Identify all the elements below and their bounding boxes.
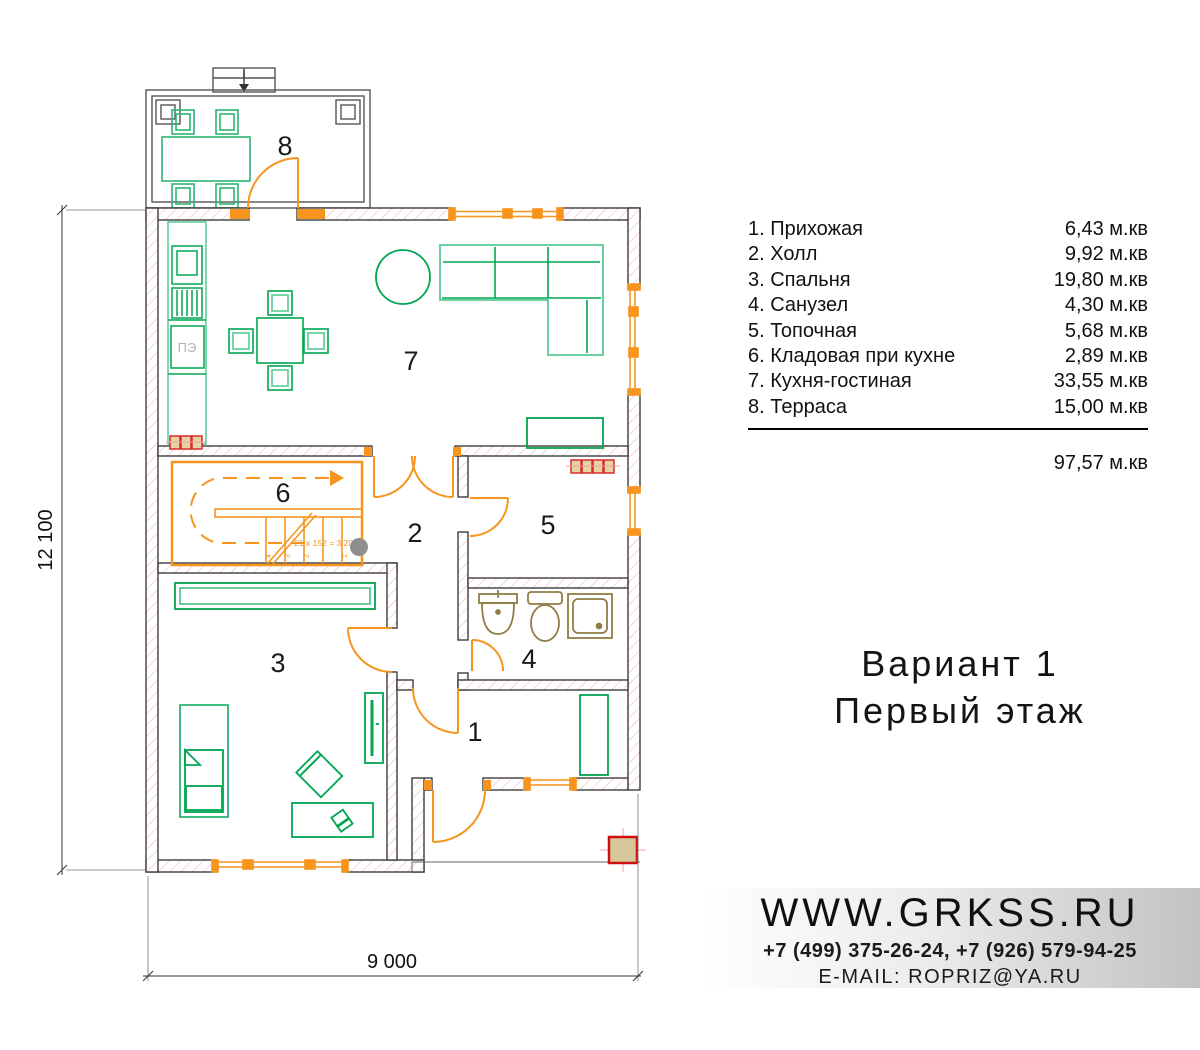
legend-row: 8. Терраса 15,00 м.кв: [748, 395, 1148, 420]
corner-sofa: [440, 245, 603, 355]
terrace-chair: [172, 110, 194, 134]
round-table: [376, 250, 430, 304]
bedroom-furniture: [175, 583, 383, 837]
dim-height-label: 12 100: [35, 509, 57, 570]
steps-arrow-icon: [239, 84, 249, 92]
stair-walk-line: [191, 478, 330, 543]
kitchen-stove-hatch: [172, 288, 202, 318]
legend-room-area: 9,92 м.кв: [1065, 242, 1148, 267]
terrace-steps: [213, 68, 275, 92]
legend-row: 3. Спальня 19,80 м.кв: [748, 268, 1148, 293]
svg-text:2: 2: [304, 554, 311, 558]
toilet-icon: [528, 592, 562, 641]
desk: [292, 803, 373, 837]
legend-room-name: 5. Топочная: [748, 319, 857, 344]
legend-room-name: 3. Спальня: [748, 268, 851, 293]
dining-set: [229, 291, 328, 390]
doors: [230, 158, 508, 842]
legend-row: 1. Прихожая 6,43 м.кв: [748, 217, 1148, 242]
svg-text:4: 4: [266, 554, 273, 558]
terrace: [146, 68, 370, 208]
walls: [146, 208, 640, 872]
dining-chair: [268, 366, 292, 390]
legend-room-area: 6,43 м.кв: [1065, 217, 1148, 242]
chimney-shaft: [600, 828, 646, 872]
legend-room-area: 5,68 м.кв: [1065, 319, 1148, 344]
entrance-porch: [412, 862, 640, 872]
room-labels: 8 7 6 2 5 4 3 1: [270, 131, 555, 747]
legend-room-area: 33,55 м.кв: [1054, 369, 1148, 394]
shower-icon: [568, 594, 612, 638]
wardrobe: [175, 583, 375, 609]
terrace-column: [336, 100, 360, 124]
legend-divider: [748, 428, 1148, 430]
legend-row: 4. Санузел 4,30 м.кв: [748, 293, 1148, 318]
dining-chair: [268, 291, 292, 315]
legend-row: 6. Кладовая при кухне 2,89 м.кв: [748, 344, 1148, 369]
bathroom-fixtures: [479, 590, 612, 641]
floor-plan-drawing: 21 x 152 = 3 200 4 3 2 1: [0, 0, 700, 1050]
door-boiler: [470, 498, 508, 536]
legend-room-area: 2,89 м.кв: [1065, 344, 1148, 369]
windows: [212, 208, 640, 872]
kitchen-counter: ПЭ: [168, 222, 206, 444]
door-bedroom: [348, 628, 392, 672]
door-terrace: [230, 158, 325, 219]
title-floor: Первый этаж: [740, 687, 1180, 734]
stair-newel-post: [350, 538, 368, 556]
legend-row: 2. Холл 9,92 м.кв: [748, 242, 1148, 267]
terrace-table: [162, 137, 250, 181]
terrace-chair: [216, 184, 238, 208]
contact-panel: WWW.GRKSS.RU +7 (499) 375-26-24, +7 (926…: [700, 888, 1200, 988]
legend-room-name: 6. Кладовая при кухне: [748, 344, 955, 369]
stair-arrow-icon: [330, 470, 344, 486]
room-legend: 1. Прихожая 6,43 м.кв 2. Холл 9,92 м.кв …: [748, 217, 1148, 475]
dim-width-label: 9 000: [367, 951, 417, 973]
electric-stove-label: ПЭ: [178, 340, 197, 355]
legend-room-area: 15,00 м.кв: [1054, 395, 1148, 420]
legend-room-name: 8. Терраса: [748, 395, 847, 420]
plan-title: Вариант 1 Первый этаж: [740, 640, 1180, 734]
room-1-label: 1: [467, 717, 482, 747]
room-7-label: 7: [403, 346, 418, 376]
legend-room-name: 2. Холл: [748, 242, 817, 267]
staircase: 21 x 152 = 3 200 4 3 2 1: [172, 462, 368, 565]
window-living-right: [628, 284, 640, 395]
phone-numbers: +7 (499) 375-26-24, +7 (926) 579-94-25: [700, 940, 1200, 963]
title-variant: Вариант 1: [740, 640, 1180, 687]
window-kitchen-top: [449, 208, 563, 220]
website-link[interactable]: WWW.GRKSS.RU: [700, 891, 1200, 936]
room-4-label: 4: [521, 644, 536, 674]
room-2-label: 2: [407, 518, 422, 548]
door-bathroom: [472, 640, 503, 671]
dining-table: [257, 318, 303, 363]
door-hall-double: [364, 447, 461, 497]
total-area: 97,57 м.кв: [748, 452, 1148, 475]
room-6-label: 6: [275, 478, 290, 508]
radiator-boiler: [566, 460, 620, 473]
stair-note: 21 x 152 = 3 200: [294, 538, 358, 548]
legend-room-name: 7. Кухня-гостиная: [748, 369, 912, 394]
room-5-label: 5: [540, 510, 555, 540]
sink-icon: [479, 590, 517, 634]
terrace-chair: [172, 184, 194, 208]
svg-text:1: 1: [342, 554, 349, 558]
radiator-kitchen: [166, 436, 206, 449]
laptop-icon: [331, 810, 352, 832]
tv-stand: [527, 418, 603, 448]
legend-room-name: 1. Прихожая: [748, 217, 863, 242]
dining-chair: [304, 329, 328, 353]
legend-room-name: 4. Санузел: [748, 293, 848, 318]
door-entrance: [424, 780, 491, 842]
legend-row: 7. Кухня-гостиная 33,55 м.кв: [748, 369, 1148, 394]
email-address[interactable]: E-MAIL: ROPRIZ@YA.RU: [700, 966, 1200, 989]
tv-icon: [365, 693, 383, 763]
dining-chair: [229, 329, 253, 353]
legend-room-area: 4,30 м.кв: [1065, 293, 1148, 318]
room-8-label: 8: [277, 131, 292, 161]
room-3-label: 3: [270, 648, 285, 678]
floor-plan-sheet: 21 x 152 = 3 200 4 3 2 1: [0, 0, 1200, 1050]
legend-room-area: 19,80 м.кв: [1054, 268, 1148, 293]
desk-chair: [296, 751, 342, 797]
bed: [180, 705, 228, 817]
dimension-height: 12 100: [35, 205, 146, 875]
window-entry-bottom: [524, 778, 576, 790]
door-entry-hall: [413, 688, 458, 733]
kitchen-sink: [172, 246, 202, 284]
entry-wardrobe: [580, 695, 608, 775]
terrace-chair: [216, 110, 238, 134]
window-bedroom-bottom: [212, 860, 348, 872]
window-boiler-right: [628, 487, 640, 535]
svg-text:3: 3: [285, 554, 292, 558]
legend-row: 5. Топочная 5,68 м.кв: [748, 319, 1148, 344]
